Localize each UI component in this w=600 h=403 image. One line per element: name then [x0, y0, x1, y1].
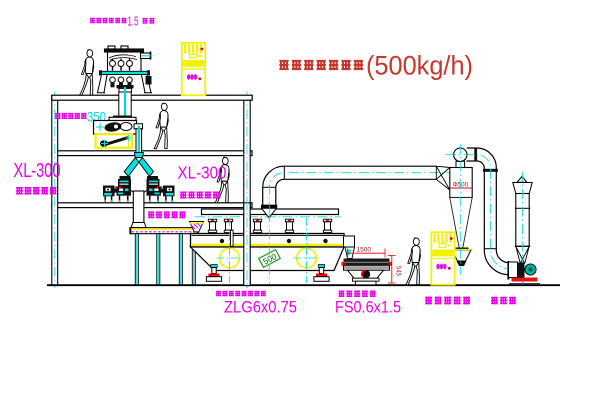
svg-text:Φ500: Φ500	[453, 182, 469, 189]
svg-text:XL-300: XL-300	[14, 160, 61, 182]
svg-text:XL-300: XL-300	[178, 163, 227, 183]
svg-text:545: 545	[395, 266, 401, 277]
svg-text:1.5: 1.5	[128, 14, 139, 29]
svg-text:(500kg/h): (500kg/h)	[366, 51, 473, 81]
svg-text:1500: 1500	[357, 247, 372, 254]
svg-text:ZLG6x0.75: ZLG6x0.75	[224, 299, 297, 317]
svg-text:FS0.6x1.5: FS0.6x1.5	[335, 299, 401, 317]
